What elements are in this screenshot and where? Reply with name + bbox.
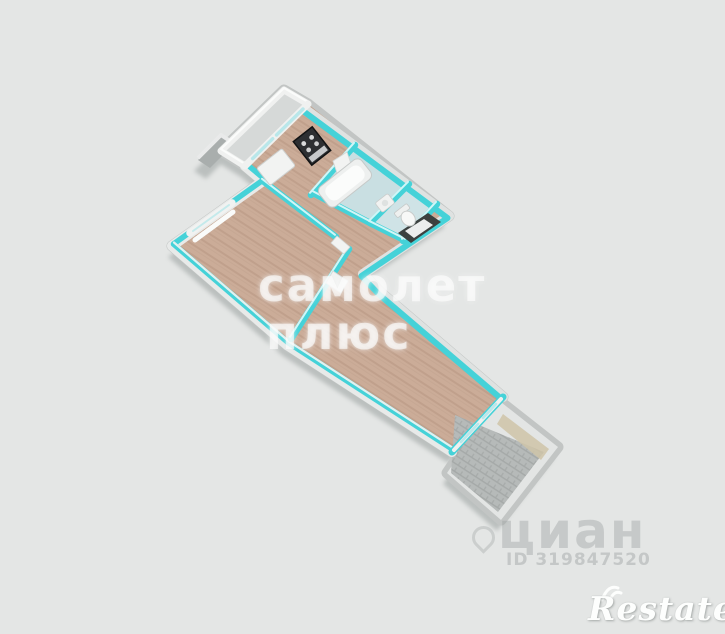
floorplan-screenshot: самолет плюс циан ID 319847520 Restate bbox=[0, 0, 725, 634]
watermark-listing-id: ID 319847520 bbox=[506, 552, 651, 569]
watermark-plus: плюс bbox=[266, 310, 411, 356]
watermark-cian: циан bbox=[498, 506, 646, 556]
watermark-samolet: самолет bbox=[258, 263, 486, 308]
watermark-restate: Restate bbox=[588, 592, 725, 625]
